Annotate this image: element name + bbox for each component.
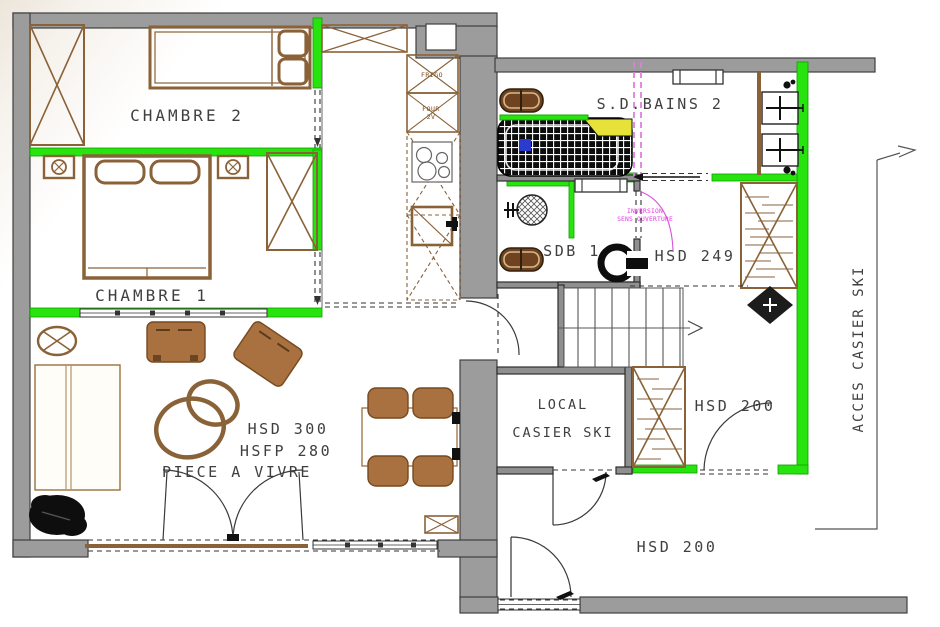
local-label-line2: CASIER SKI [512, 425, 613, 441]
window-living [313, 541, 437, 549]
acces-annotation: ACCES CASIER SKI [815, 146, 915, 529]
sideboard-icon [35, 365, 120, 490]
toilet-icon [601, 247, 649, 279]
door-sdb2 [633, 173, 708, 181]
towel-radiator-icon [500, 89, 543, 112]
bathtub-icon [498, 115, 632, 176]
floor-plan-canvas: CHAMBRE 2 CHAMBRE 1 [0, 0, 940, 627]
hsd249-label: HSD 249 [655, 247, 736, 265]
armchair-icon [232, 320, 305, 389]
rail-icon [673, 70, 723, 84]
door-living-to-hall [466, 294, 519, 357]
entry-door [498, 537, 580, 610]
pedestal-table-icon [38, 327, 76, 355]
vent-box-icon [425, 516, 458, 533]
piece-a-vivre-label: PIECE A VIVRE [162, 463, 312, 481]
shelf-icon [575, 179, 627, 192]
room-local-casier-ski: LOCAL CASIER SKI [512, 367, 685, 525]
nightstand-icon [44, 156, 74, 178]
floor-plan-drawing: CHAMBRE 2 CHAMBRE 1 [0, 0, 940, 627]
ski-cabinet-icon [633, 367, 685, 467]
coffee-table-icon [150, 374, 244, 464]
room-hsd200-mid: HSD 200 [695, 397, 776, 474]
hsd300-label: HSD 300 [248, 420, 329, 438]
local-label-line1: LOCAL [538, 397, 589, 413]
armchair-icon [147, 322, 205, 362]
door-local [553, 470, 616, 525]
passage-dashed-chambre1 [314, 252, 321, 306]
room-piece-a-vivre: HSD 300 HSFP 280 PIECE A VIVRE [29, 294, 519, 551]
double-bed-icon [84, 156, 210, 278]
oven-icon: FOUR 2V [407, 93, 458, 132]
fridge-icon: FRIGO [407, 55, 458, 93]
window-chambre1 [80, 309, 267, 317]
sink-icon [412, 207, 458, 245]
dining-set-icon [362, 388, 460, 486]
kitchen-block: FRIGO FOUR 2V [322, 25, 460, 307]
round-basin-icon [504, 195, 547, 225]
cooktop-icon [412, 142, 452, 182]
wardrobe-icon [267, 153, 317, 250]
room-chambre1: CHAMBRE 1 [44, 153, 321, 317]
sdb2-label: S.D.BAINS 2 [597, 95, 724, 113]
sdb1-label: SDB 1 [543, 242, 601, 260]
inversion-note-line1: INVERSION [627, 208, 663, 215]
kitchen-passage-dashed [325, 303, 458, 307]
ski-rack-icon [741, 183, 797, 288]
column-diamond-icon [747, 286, 793, 324]
nightstand-icon [218, 156, 248, 178]
inversion-note-line2: SENS OUVERTURE [617, 216, 673, 223]
towel-radiator-icon [500, 248, 543, 271]
wardrobe-icon [30, 25, 84, 145]
tall-cabinet-icon [322, 25, 407, 52]
four-sub-label: 2V [427, 113, 436, 121]
demolition-dashed-magenta [634, 62, 641, 179]
passage-dashed-chambre2 [314, 90, 321, 148]
hsd200-mid-label: HSD 200 [695, 397, 776, 415]
hsfp280-label: HSFP 280 [240, 442, 332, 460]
room-sdb1: SDB 1 INVERSION SENS OUVERTURE [500, 179, 673, 279]
rug-icon [29, 495, 87, 536]
frigo-label: FRIGO [421, 71, 443, 79]
acces-casier-ski-label: ACCES CASIER SKI [851, 266, 867, 433]
four-label: FOUR [422, 105, 440, 113]
chambre1-label: CHAMBRE 1 [95, 286, 209, 305]
chambre2-label: CHAMBRE 2 [130, 106, 244, 125]
hsd200-bottom-label: HSD 200 [637, 538, 718, 556]
single-bed-icon [150, 27, 310, 88]
staircase [558, 288, 702, 367]
